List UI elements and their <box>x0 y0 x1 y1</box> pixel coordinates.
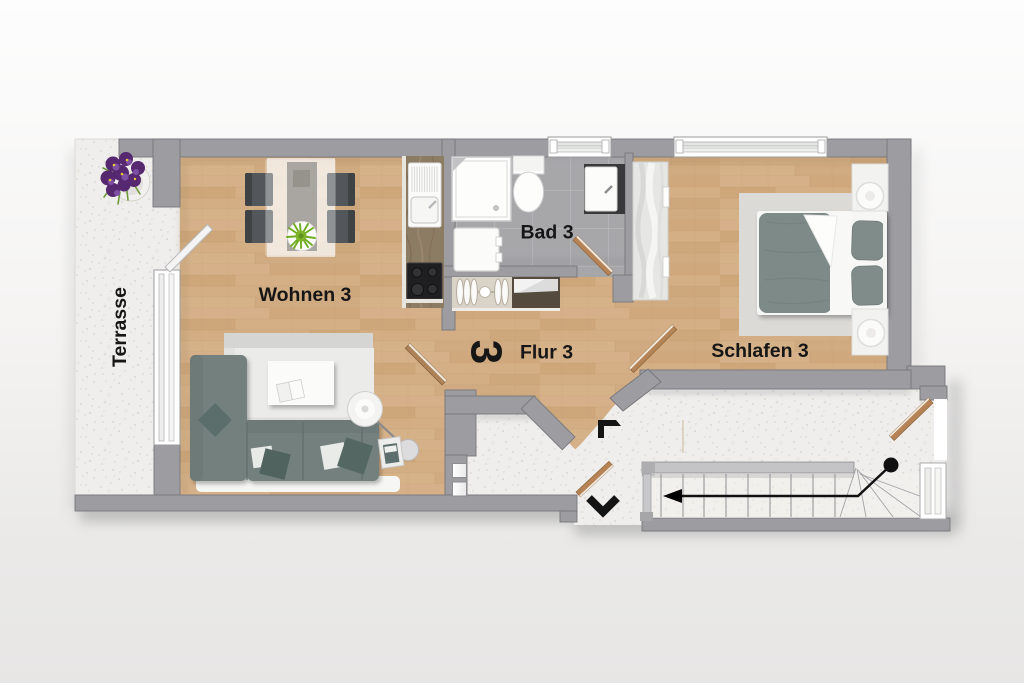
svg-text:Bad 3: Bad 3 <box>520 222 573 244</box>
svg-text:Wohnen 3: Wohnen 3 <box>259 284 352 306</box>
svg-text:3: 3 <box>462 340 511 364</box>
svg-text:Terrasse: Terrasse <box>109 287 131 367</box>
svg-text:Flur 3: Flur 3 <box>520 342 573 364</box>
svg-text:Schlafen 3: Schlafen 3 <box>711 340 809 362</box>
